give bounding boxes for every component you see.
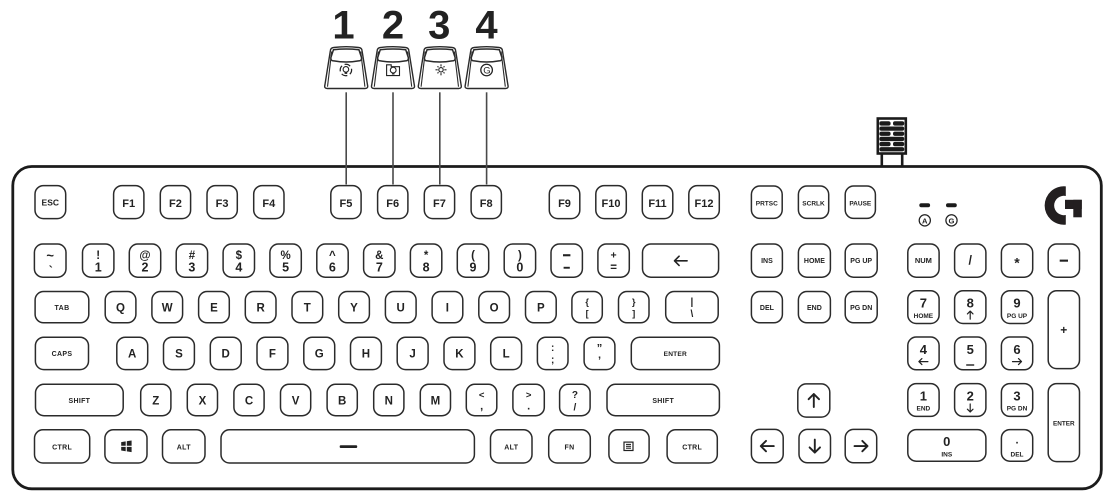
svg-text:END: END xyxy=(807,305,822,312)
svg-text:<: < xyxy=(479,390,485,401)
svg-text:\: \ xyxy=(691,309,694,320)
svg-text:F11: F11 xyxy=(648,198,666,210)
svg-text:F2: F2 xyxy=(169,198,182,210)
svg-text:*: * xyxy=(1014,255,1020,271)
svg-text:5: 5 xyxy=(282,261,289,275)
svg-text:7: 7 xyxy=(376,261,383,275)
svg-text:L: L xyxy=(503,349,510,361)
svg-text:I: I xyxy=(446,302,449,314)
svg-text:F5: F5 xyxy=(339,198,352,210)
svg-text:3: 3 xyxy=(188,261,195,275)
svg-text:}: } xyxy=(632,297,636,307)
svg-text:/: / xyxy=(968,254,972,268)
svg-text:F12: F12 xyxy=(695,198,714,210)
svg-text:,: , xyxy=(480,401,483,413)
svg-text:PG DN: PG DN xyxy=(1007,406,1028,413)
svg-text:E: E xyxy=(210,302,218,314)
svg-text:DEL: DEL xyxy=(760,305,775,312)
svg-text:T: T xyxy=(304,302,311,314)
svg-text:/: / xyxy=(574,403,577,414)
svg-text:G: G xyxy=(949,216,955,225)
svg-text:X: X xyxy=(199,395,207,407)
svg-text:;: ; xyxy=(551,355,554,366)
svg-text:”: ” xyxy=(597,342,603,354)
svg-text:F9: F9 xyxy=(558,198,571,210)
svg-text:FN: FN xyxy=(565,445,575,452)
svg-text:B: B xyxy=(338,395,346,407)
svg-text:F8: F8 xyxy=(480,198,493,210)
svg-text:4: 4 xyxy=(235,261,242,275)
svg-text:H: H xyxy=(362,349,370,361)
svg-text:CTRL: CTRL xyxy=(52,445,72,452)
svg-text:M: M xyxy=(431,395,441,407)
svg-text:SHIFT: SHIFT xyxy=(69,398,91,405)
svg-text:G: G xyxy=(483,65,490,76)
svg-text:Q: Q xyxy=(116,302,125,314)
svg-text:S: S xyxy=(175,349,183,361)
svg-text:PG UP: PG UP xyxy=(1007,313,1028,320)
svg-text:K: K xyxy=(455,349,464,361)
svg-text:2: 2 xyxy=(382,4,404,48)
svg-text:O: O xyxy=(490,302,499,314)
svg-text:.: . xyxy=(1015,435,1018,447)
svg-text::: : xyxy=(551,343,554,354)
svg-text:V: V xyxy=(292,395,300,407)
svg-text:1: 1 xyxy=(332,4,354,48)
svg-text:D: D xyxy=(222,349,230,361)
svg-text:1: 1 xyxy=(920,388,927,403)
svg-text:[: [ xyxy=(586,309,589,319)
svg-text:DEL: DEL xyxy=(1011,451,1024,458)
svg-text:6: 6 xyxy=(329,261,336,275)
svg-text:CTRL: CTRL xyxy=(682,445,702,452)
svg-text:.: . xyxy=(527,401,530,413)
svg-text:F3: F3 xyxy=(216,198,229,210)
svg-text:U: U xyxy=(397,302,405,314)
svg-text:R: R xyxy=(256,302,265,314)
svg-text:ESC: ESC xyxy=(42,197,59,207)
svg-text:ALT: ALT xyxy=(177,445,191,452)
svg-text:SHIFT: SHIFT xyxy=(652,398,674,405)
svg-text:]: ] xyxy=(632,309,635,319)
svg-text:A: A xyxy=(128,349,136,361)
svg-text:’: ’ xyxy=(598,355,601,367)
svg-text:NUM: NUM xyxy=(915,256,932,265)
svg-text:F7: F7 xyxy=(433,198,446,210)
svg-text:Z: Z xyxy=(152,395,159,407)
svg-text:3: 3 xyxy=(1013,388,1020,403)
svg-text:F1: F1 xyxy=(122,198,135,210)
svg-text:0: 0 xyxy=(516,261,523,275)
svg-text:F4: F4 xyxy=(262,198,276,210)
svg-text:G: G xyxy=(315,349,324,361)
svg-text:4: 4 xyxy=(475,4,498,48)
svg-text:4: 4 xyxy=(920,342,928,357)
svg-text:?: ? xyxy=(572,390,578,401)
svg-text:ALT: ALT xyxy=(504,445,518,452)
svg-text:2: 2 xyxy=(967,388,974,403)
svg-text:Y: Y xyxy=(350,302,358,314)
svg-text:5: 5 xyxy=(967,342,974,357)
svg-text:9: 9 xyxy=(470,261,477,275)
svg-text:INS: INS xyxy=(761,258,773,265)
svg-text:2: 2 xyxy=(142,261,149,275)
svg-text:HOME: HOME xyxy=(914,313,934,320)
svg-text:1: 1 xyxy=(95,261,102,275)
svg-text:ENTER: ENTER xyxy=(664,351,687,358)
svg-text:9: 9 xyxy=(1013,296,1020,311)
svg-text:C: C xyxy=(245,395,253,407)
svg-text:7: 7 xyxy=(920,296,927,311)
svg-text:A: A xyxy=(922,216,928,225)
svg-text:{: { xyxy=(585,297,589,307)
svg-text:INS: INS xyxy=(941,451,953,458)
svg-text:F10: F10 xyxy=(602,198,621,210)
svg-text:PG UP: PG UP xyxy=(850,258,872,265)
svg-text:N: N xyxy=(385,395,393,407)
svg-text:PRTSC: PRTSC xyxy=(756,200,778,207)
svg-text:|: | xyxy=(690,297,693,308)
svg-text:PAUSE: PAUSE xyxy=(849,200,872,207)
svg-text:=: = xyxy=(610,262,617,274)
svg-text:PG DN: PG DN xyxy=(850,305,872,312)
svg-text:P: P xyxy=(537,302,545,314)
svg-text:F6: F6 xyxy=(386,198,399,210)
svg-text:0: 0 xyxy=(943,434,950,449)
svg-text:TAB: TAB xyxy=(54,305,69,312)
svg-text:ENTER: ENTER xyxy=(1053,420,1075,427)
svg-text:HOME: HOME xyxy=(804,258,825,265)
svg-text:CAPS: CAPS xyxy=(52,351,73,358)
svg-text:`: ` xyxy=(49,263,53,277)
svg-text:8: 8 xyxy=(967,296,974,311)
svg-text:SCRLK: SCRLK xyxy=(802,200,825,207)
svg-text:F: F xyxy=(269,349,276,361)
svg-text:+: + xyxy=(1060,323,1067,337)
svg-text:END: END xyxy=(917,406,931,413)
svg-text:6: 6 xyxy=(1013,342,1020,357)
svg-text:+: + xyxy=(611,250,617,262)
svg-text:W: W xyxy=(162,302,173,314)
svg-text:~: ~ xyxy=(46,248,54,263)
svg-text:3: 3 xyxy=(428,4,450,48)
svg-text:J: J xyxy=(409,349,415,361)
svg-text:>: > xyxy=(526,390,532,401)
svg-text:8: 8 xyxy=(423,261,430,275)
